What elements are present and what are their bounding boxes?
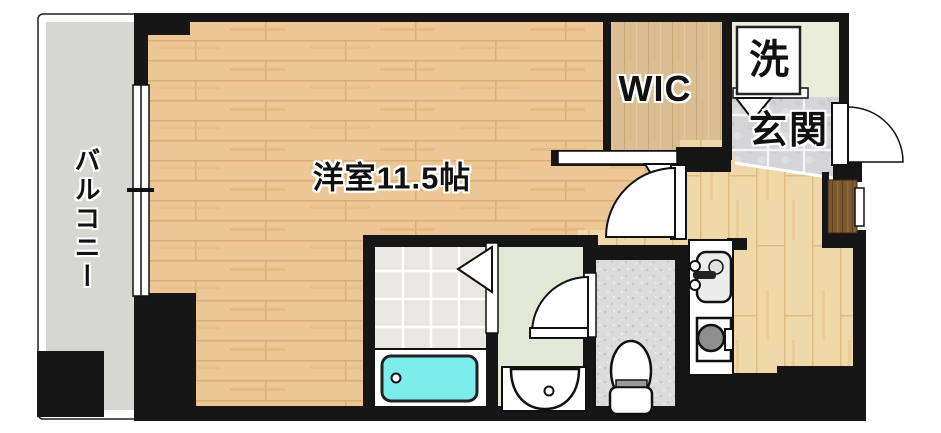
kitchen-unit: [689, 240, 733, 375]
label-laundry: 洗: [749, 40, 789, 80]
shoe-cabinet-handle: [855, 188, 864, 226]
label-wic: WIC: [619, 71, 692, 107]
faucet-icon: [693, 271, 716, 279]
basin-drain-icon: [545, 387, 554, 396]
entrance-door-swing: [848, 107, 903, 162]
floor-plan-drawing: [0, 0, 941, 433]
label-entrance: 玄関: [749, 112, 829, 150]
balcony-pillar: [37, 351, 104, 417]
wic-door-opening: [558, 151, 677, 164]
label-living-room: 洋室11.5帖: [313, 163, 472, 194]
washroom-door-leaf: [530, 328, 588, 338]
bathtub-drain-icon: [392, 374, 401, 383]
label-balcony: バルコニー: [73, 147, 99, 292]
wash-basin: [502, 367, 586, 411]
floor-plan: バルコニー 洋室11.5帖 WIC 洗 玄関: [0, 0, 941, 433]
toilet: [610, 341, 652, 414]
shoe-cabinet: [828, 180, 864, 233]
entrance-door-leaf: [832, 103, 848, 165]
burner-icon: [698, 325, 724, 351]
